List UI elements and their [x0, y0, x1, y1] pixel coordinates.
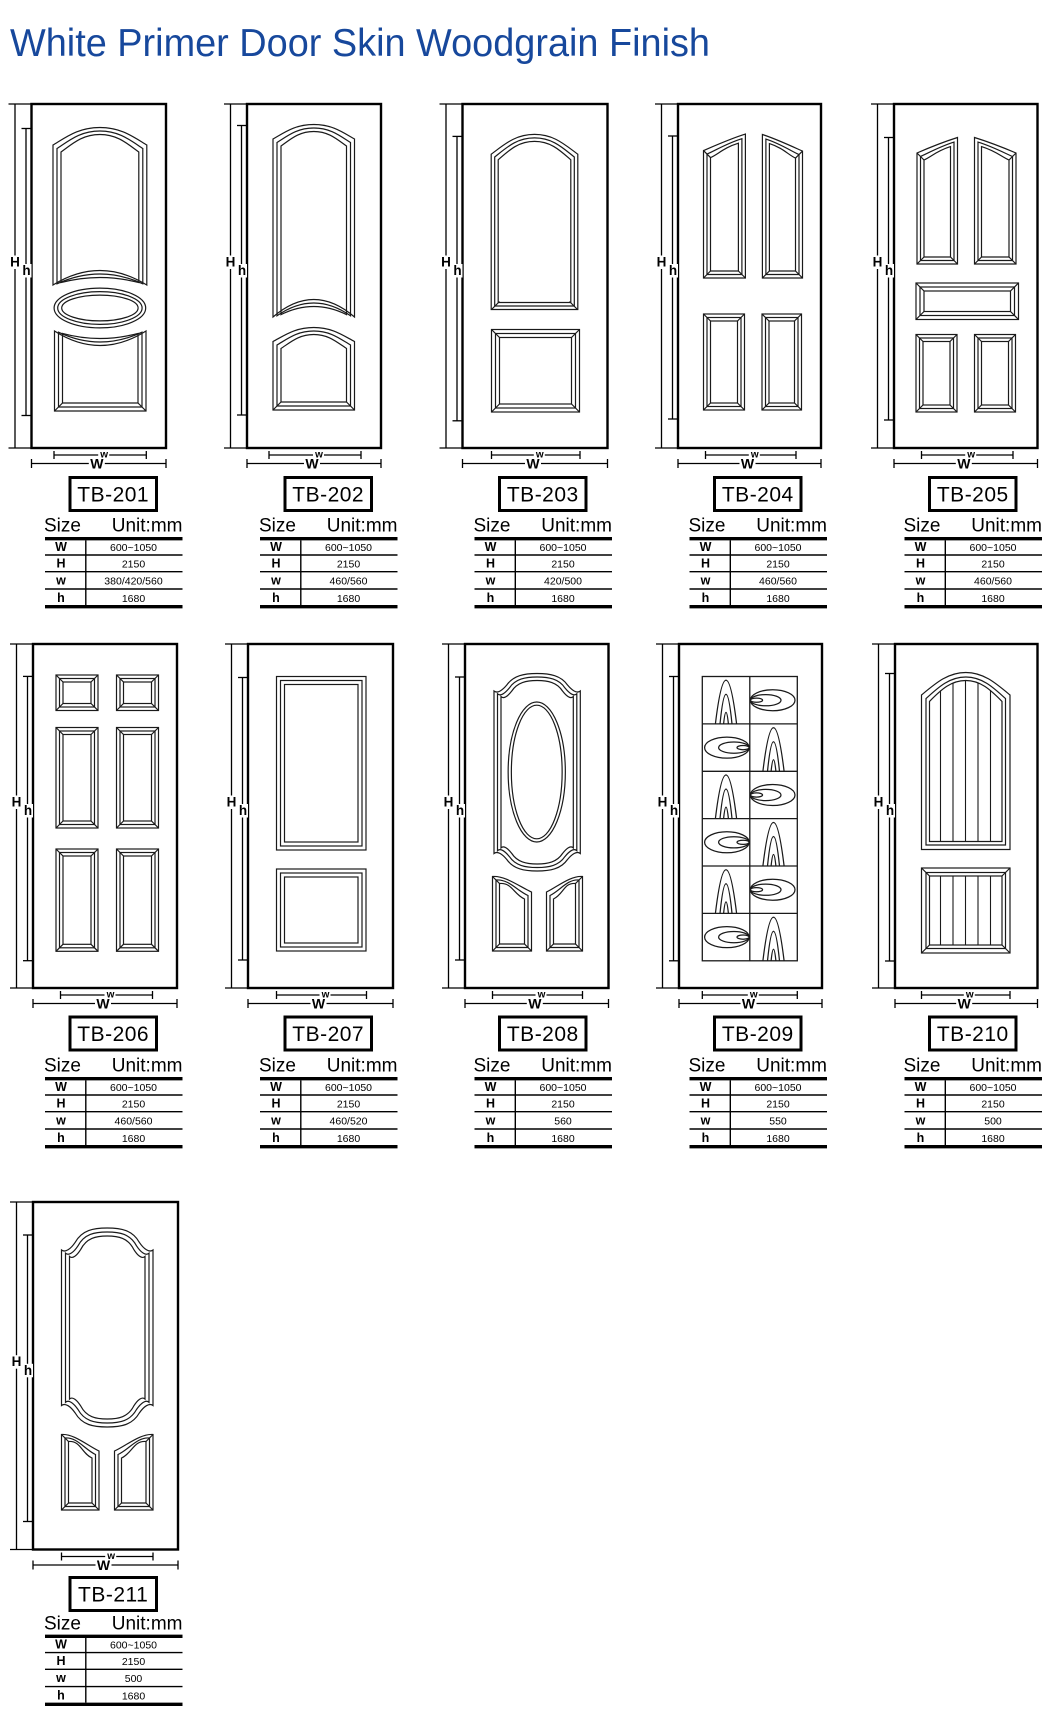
svg-text:H: H: [486, 1096, 495, 1110]
svg-text:1680: 1680: [122, 1690, 146, 1702]
svg-text:h: h: [670, 803, 678, 818]
svg-text:TB-208: TB-208: [507, 1023, 579, 1046]
svg-text:TB-202: TB-202: [292, 484, 364, 507]
svg-text:h: h: [57, 1131, 65, 1145]
svg-text:2150: 2150: [981, 1098, 1005, 1110]
svg-text:H: H: [874, 795, 884, 810]
svg-text:1680: 1680: [551, 1133, 575, 1145]
svg-text:H: H: [56, 1096, 65, 1110]
svg-text:w: w: [485, 1114, 496, 1128]
svg-text:1680: 1680: [337, 1133, 361, 1145]
svg-text:2150: 2150: [766, 558, 790, 570]
svg-text:h: h: [885, 263, 893, 278]
svg-text:Unit:mm: Unit:mm: [112, 1056, 183, 1077]
svg-text:w: w: [915, 1114, 926, 1128]
svg-text:600~1050: 600~1050: [969, 1082, 1016, 1094]
svg-text:2150: 2150: [551, 1098, 575, 1110]
svg-text:Unit:mm: Unit:mm: [541, 1056, 612, 1077]
svg-text:600~1050: 600~1050: [539, 542, 586, 554]
svg-text:W: W: [915, 1080, 927, 1094]
svg-text:Unit:mm: Unit:mm: [971, 1056, 1042, 1077]
svg-text:H: H: [658, 795, 668, 810]
svg-text:h: h: [57, 1688, 65, 1702]
svg-text:1680: 1680: [766, 593, 790, 605]
svg-text:1680: 1680: [766, 1133, 790, 1145]
svg-text:w: w: [485, 574, 496, 588]
svg-text:600~1050: 600~1050: [110, 1082, 157, 1094]
svg-text:420/500: 420/500: [544, 576, 582, 588]
svg-text:1680: 1680: [337, 593, 361, 605]
svg-text:H: H: [916, 1096, 925, 1110]
svg-text:2150: 2150: [122, 558, 146, 570]
svg-text:W: W: [741, 456, 755, 472]
svg-text:W: W: [97, 1557, 111, 1573]
svg-text:H: H: [441, 255, 451, 270]
svg-text:H: H: [701, 1096, 710, 1110]
svg-text:W: W: [915, 540, 927, 554]
svg-text:W: W: [55, 1080, 67, 1094]
svg-text:W: W: [958, 996, 972, 1012]
svg-text:1680: 1680: [981, 593, 1005, 605]
svg-text:Size: Size: [44, 1613, 81, 1634]
svg-text:Unit:mm: Unit:mm: [541, 516, 612, 537]
svg-text:600~1050: 600~1050: [110, 1640, 157, 1652]
svg-text:1680: 1680: [981, 1133, 1005, 1145]
svg-text:h: h: [24, 1363, 32, 1378]
svg-text:460/560: 460/560: [115, 1116, 153, 1128]
svg-text:H: H: [12, 795, 22, 810]
svg-text:h: h: [456, 803, 464, 818]
svg-text:w: w: [915, 574, 926, 588]
svg-text:H: H: [271, 1096, 280, 1110]
svg-text:600~1050: 600~1050: [325, 542, 372, 554]
svg-text:H: H: [271, 556, 280, 570]
svg-text:W: W: [90, 456, 104, 472]
svg-text:380/420/560: 380/420/560: [104, 576, 163, 588]
svg-text:TB-206: TB-206: [77, 1023, 149, 1046]
svg-text:500: 500: [125, 1673, 143, 1685]
svg-text:Unit:mm: Unit:mm: [327, 516, 398, 537]
svg-text:Unit:mm: Unit:mm: [756, 516, 827, 537]
svg-text:h: h: [272, 591, 280, 605]
svg-text:H: H: [56, 1654, 65, 1668]
svg-text:h: h: [669, 263, 677, 278]
svg-text:460/560: 460/560: [974, 576, 1012, 588]
svg-text:h: h: [487, 1131, 495, 1145]
svg-text:TB-205: TB-205: [937, 484, 1009, 507]
svg-text:H: H: [227, 795, 237, 810]
svg-text:460/560: 460/560: [330, 576, 368, 588]
svg-text:H: H: [444, 795, 454, 810]
svg-text:Unit:mm: Unit:mm: [756, 1056, 827, 1077]
svg-text:Unit:mm: Unit:mm: [112, 1613, 183, 1634]
svg-text:Size: Size: [474, 1056, 511, 1077]
svg-text:h: h: [272, 1131, 280, 1145]
svg-text:w: w: [55, 1114, 66, 1128]
svg-text:2150: 2150: [766, 1098, 790, 1110]
svg-text:H: H: [226, 255, 236, 270]
svg-text:h: h: [917, 1131, 925, 1145]
svg-text:1680: 1680: [122, 1133, 146, 1145]
svg-text:W: W: [485, 1080, 497, 1094]
svg-text:2150: 2150: [337, 558, 361, 570]
svg-text:Size: Size: [689, 516, 726, 537]
svg-text:Size: Size: [259, 516, 296, 537]
svg-text:h: h: [702, 1131, 710, 1145]
svg-text:w: w: [270, 574, 281, 588]
svg-text:h: h: [22, 263, 30, 278]
svg-text:2150: 2150: [981, 558, 1005, 570]
svg-text:w: w: [700, 1114, 711, 1128]
svg-text:Size: Size: [44, 1056, 81, 1077]
svg-text:H: H: [56, 556, 65, 570]
svg-text:White Primer Door Skin Woodgra: White Primer Door Skin Woodgrain Finish: [10, 22, 710, 65]
svg-text:H: H: [916, 556, 925, 570]
svg-text:TB-207: TB-207: [292, 1023, 364, 1046]
svg-text:H: H: [701, 556, 710, 570]
svg-text:2150: 2150: [122, 1656, 146, 1668]
svg-text:460/520: 460/520: [330, 1116, 368, 1128]
svg-text:W: W: [526, 456, 540, 472]
svg-text:560: 560: [554, 1116, 572, 1128]
svg-text:W: W: [270, 540, 282, 554]
svg-text:TB-201: TB-201: [77, 484, 149, 507]
svg-text:TB-211: TB-211: [78, 1584, 148, 1607]
svg-text:W: W: [742, 996, 756, 1012]
svg-text:460/560: 460/560: [759, 576, 797, 588]
svg-text:W: W: [55, 540, 67, 554]
svg-text:W: W: [270, 1080, 282, 1094]
svg-text:W: W: [957, 456, 971, 472]
svg-text:H: H: [12, 1354, 22, 1369]
svg-text:500: 500: [984, 1116, 1002, 1128]
svg-text:Size: Size: [904, 1056, 941, 1077]
svg-text:2150: 2150: [551, 558, 575, 570]
svg-text:600~1050: 600~1050: [110, 542, 157, 554]
svg-text:600~1050: 600~1050: [539, 1082, 586, 1094]
svg-text:w: w: [55, 1671, 66, 1685]
svg-text:TB-210: TB-210: [937, 1023, 1009, 1046]
svg-text:600~1050: 600~1050: [754, 542, 801, 554]
svg-text:h: h: [917, 591, 925, 605]
svg-text:W: W: [700, 1080, 712, 1094]
svg-text:W: W: [700, 540, 712, 554]
svg-text:W: W: [528, 996, 542, 1012]
svg-text:TB-204: TB-204: [722, 484, 794, 507]
svg-text:h: h: [702, 591, 710, 605]
svg-text:h: h: [238, 263, 246, 278]
svg-text:Unit:mm: Unit:mm: [112, 516, 183, 537]
svg-text:1680: 1680: [122, 593, 146, 605]
svg-text:600~1050: 600~1050: [325, 1082, 372, 1094]
svg-text:Size: Size: [474, 516, 511, 537]
svg-text:w: w: [700, 574, 711, 588]
svg-text:h: h: [487, 591, 495, 605]
svg-text:600~1050: 600~1050: [754, 1082, 801, 1094]
svg-text:Size: Size: [689, 1056, 726, 1077]
svg-text:h: h: [886, 803, 894, 818]
svg-text:Size: Size: [904, 516, 941, 537]
svg-text:TB-203: TB-203: [507, 484, 579, 507]
svg-text:h: h: [24, 803, 32, 818]
svg-text:Unit:mm: Unit:mm: [327, 1056, 398, 1077]
svg-text:550: 550: [769, 1116, 787, 1128]
svg-text:Unit:mm: Unit:mm: [971, 516, 1042, 537]
svg-text:h: h: [453, 263, 461, 278]
svg-text:2150: 2150: [122, 1098, 146, 1110]
svg-text:2150: 2150: [337, 1098, 361, 1110]
svg-text:Size: Size: [44, 516, 81, 537]
svg-text:H: H: [10, 255, 20, 270]
svg-text:TB-209: TB-209: [722, 1023, 794, 1046]
svg-text:Size: Size: [259, 1056, 296, 1077]
svg-text:W: W: [312, 996, 326, 1012]
svg-text:h: h: [239, 803, 247, 818]
svg-text:h: h: [57, 591, 65, 605]
svg-text:600~1050: 600~1050: [969, 542, 1016, 554]
svg-text:H: H: [657, 255, 667, 270]
svg-text:W: W: [96, 996, 110, 1012]
svg-text:1680: 1680: [551, 593, 575, 605]
svg-text:H: H: [486, 556, 495, 570]
svg-text:H: H: [873, 255, 883, 270]
svg-text:W: W: [485, 540, 497, 554]
svg-text:W: W: [55, 1638, 67, 1652]
svg-text:W: W: [305, 456, 319, 472]
svg-text:w: w: [270, 1114, 281, 1128]
svg-text:w: w: [55, 574, 66, 588]
